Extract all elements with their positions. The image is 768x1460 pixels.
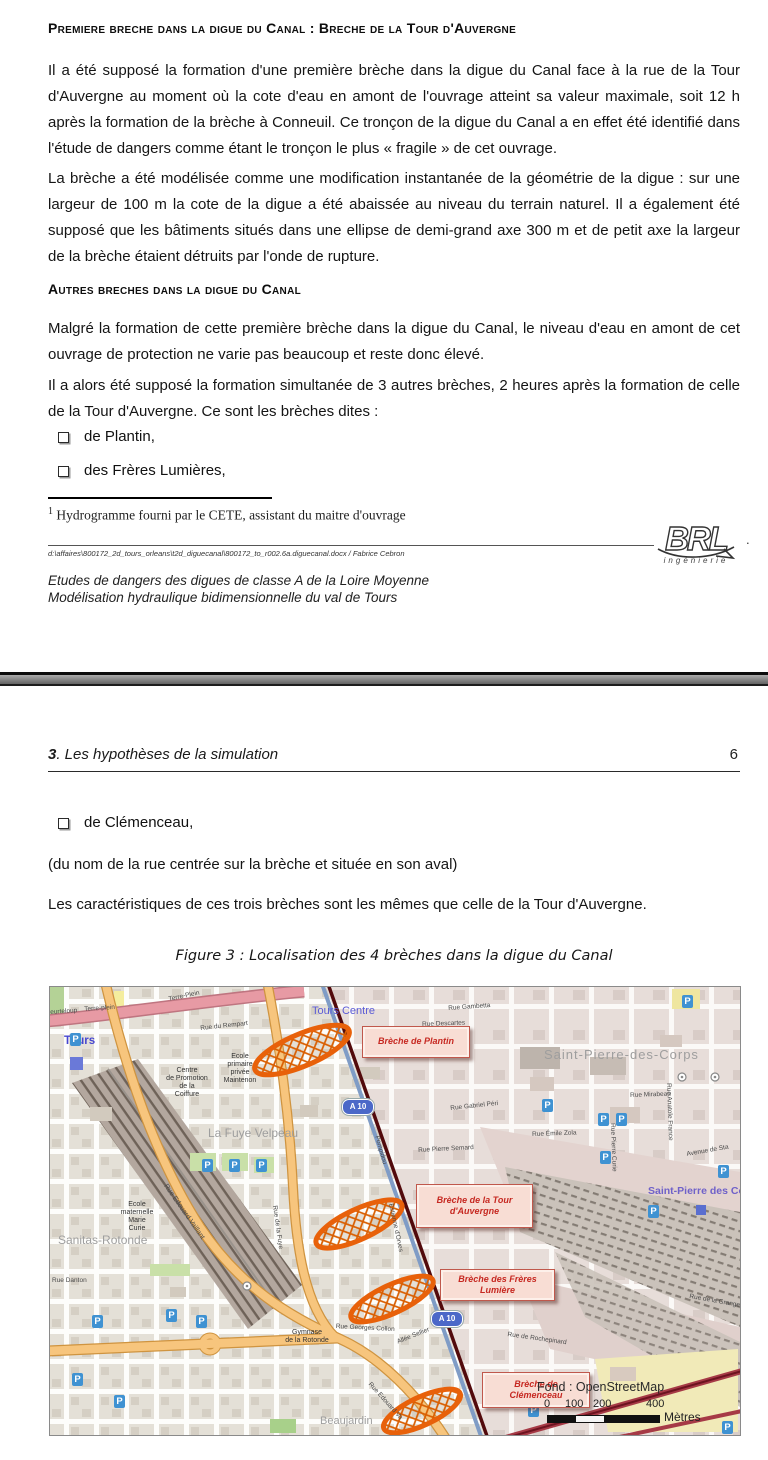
- list-item-label: de Plantin,: [84, 428, 155, 445]
- parking-icon: P: [600, 1151, 611, 1164]
- section-heading-autres-breches: Autres breches dans la digue du Canal: [48, 281, 740, 297]
- district-label-saint-pierre-des-corps: Saint-Pierre-des-Corps: [544, 1047, 699, 1062]
- paragraph-6: Les caractéristiques de ces trois brèche…: [48, 892, 740, 918]
- brl-logo: BRL ingénierie: [652, 524, 740, 565]
- square-bullet-icon: [58, 466, 69, 477]
- parking-icon: P: [70, 1033, 81, 1046]
- breach-label-plantin: Brèche de Plantin: [362, 1026, 470, 1058]
- scale-bar: [547, 1415, 660, 1423]
- scale-bar-segment: [548, 1416, 576, 1422]
- list-item-label: des Frères Lumières,: [84, 462, 226, 479]
- breach-label-line: Brèche de la Tour: [417, 1195, 532, 1207]
- poi-label-gymnase-rotonde: Gymnase de la Rotonde: [272, 1329, 342, 1345]
- district-label-beaujardin: Beaujardin: [320, 1415, 373, 1427]
- document-path: d:\affaires\800172_2d_tours_orleans\t2d_…: [48, 549, 740, 558]
- breach-label-line: Brèche de Plantin: [363, 1036, 469, 1048]
- parking-icon: P: [682, 995, 693, 1008]
- scale-tick: 400: [646, 1398, 664, 1410]
- parking-icon: P: [114, 1395, 125, 1408]
- figure-map: Tours Tours Centre Saint-Pierre-des-Corp…: [49, 986, 741, 1436]
- paragraph-3: Malgré la formation de cette première br…: [48, 316, 740, 368]
- parking-icon: P: [598, 1113, 609, 1126]
- parking-icon: P: [202, 1159, 213, 1172]
- list-item-plantin: de Plantin,: [48, 428, 750, 445]
- page-break-separator: [0, 672, 768, 686]
- motorway-a10-shield: A 10: [342, 1099, 374, 1115]
- breach-label-line: Brèche des Frères: [441, 1274, 554, 1286]
- scale-tick: 100: [565, 1398, 583, 1410]
- chapter-title: . Les hypothèses de la simulation: [56, 746, 278, 763]
- footnote: 1 Hydrogramme fourni par le CETE, assist…: [48, 506, 740, 524]
- section-heading-premiere-breche: Premiere breche dans la digue du Canal :…: [48, 20, 740, 36]
- figure-caption: Figure 3 : Localisation des 4 brèches da…: [48, 948, 740, 964]
- poi-label-ecole-marie-curie: Ecole maternelle Marie Curie: [106, 1201, 168, 1233]
- district-label-la-fuye-velpeau: La Fuye Velpeau: [208, 1126, 298, 1140]
- footnote-separator: [48, 497, 272, 499]
- footer-title-line1: Etudes de dangers des digues de classe A…: [48, 572, 740, 589]
- square-bullet-icon: [58, 818, 69, 829]
- parking-icon: P: [72, 1373, 83, 1386]
- footer-rule: [48, 545, 654, 546]
- parking-icon: P: [722, 1421, 733, 1434]
- header-rule: [48, 771, 740, 772]
- scale-tick: 0: [544, 1398, 550, 1410]
- breach-label-line: d'Auvergne: [417, 1206, 532, 1218]
- parking-icon: P: [166, 1309, 177, 1322]
- district-label-sanitas-rotonde: Sanitas-Rotonde: [58, 1233, 147, 1247]
- scale-unit: Mètres: [664, 1410, 701, 1424]
- parking-icon: P: [196, 1315, 207, 1328]
- scale-bar-segment: [576, 1416, 604, 1422]
- list-item-label: de Clémenceau,: [84, 814, 193, 831]
- footer-doc-titles: Etudes de dangers des digues de classe A…: [48, 572, 740, 606]
- parking-icon: P: [542, 1099, 553, 1112]
- footnote-text: Hydrogramme fourni par le CETE, assistan…: [56, 508, 405, 523]
- list-item-clemenceau: de Clémenceau,: [48, 814, 750, 831]
- square-bullet-icon: [58, 432, 69, 443]
- paragraph-4: Il a alors été supposé la formation simu…: [48, 373, 740, 425]
- breach-label-line: Lumière: [441, 1285, 554, 1297]
- chapter-header: 3. Les hypothèses de la simulation: [48, 746, 740, 763]
- parking-icon: P: [256, 1159, 267, 1172]
- parking-icon: P: [92, 1315, 103, 1328]
- paragraph-1: Il a été supposé la formation d'une prem…: [48, 58, 740, 162]
- map-attribution: Fond : OpenStreetMap: [537, 1380, 664, 1394]
- parking-icon: P: [648, 1205, 659, 1218]
- scale-tick: 200: [593, 1398, 611, 1410]
- street-label-rue-danton: Rue Danton: [52, 1277, 87, 1284]
- page-number: 6: [730, 746, 738, 763]
- parking-icon: P: [718, 1165, 729, 1178]
- parking-icon: P: [229, 1159, 240, 1172]
- breach-label-freres-lumiere: Brèche des Frères Lumière: [440, 1269, 555, 1301]
- breach-label-tour-auvergne: Brèche de la Tour d'Auvergne: [416, 1184, 533, 1228]
- paragraph-2: La brèche a été modélisée comme une modi…: [48, 166, 740, 270]
- motorway-a10-shield: A 10: [431, 1311, 463, 1327]
- scale-bar-segment: [604, 1416, 659, 1422]
- footer-title-line2: Modélisation hydraulique bidimensionnell…: [48, 589, 740, 606]
- footer-dot: .: [746, 532, 750, 547]
- district-label-saint-pierre-right: Saint-Pierre des Co: [648, 1185, 741, 1197]
- document-page: Premiere breche dans la digue du Canal :…: [0, 0, 768, 1460]
- paragraph-5: (du nom de la rue centrée sur la brèche …: [48, 852, 740, 878]
- district-label-tours-centre: Tours Centre: [312, 1005, 375, 1017]
- footnote-marker: 1: [48, 506, 53, 517]
- poi-label-centre-coiffure: Centre de Promotion de la Coiffure: [152, 1067, 222, 1099]
- brl-swoosh-icon: [654, 546, 738, 562]
- parking-icon: P: [616, 1113, 627, 1126]
- list-item-freres-lumieres: des Frères Lumières,: [48, 462, 750, 479]
